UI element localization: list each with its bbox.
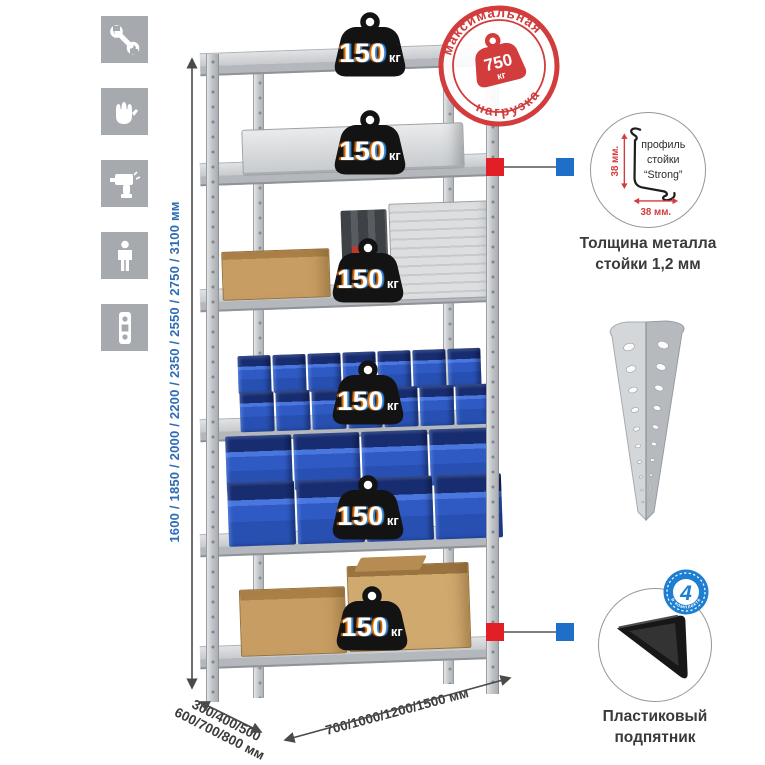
weight-label: 150кг — [328, 612, 416, 643]
weight-label: 150кг — [324, 264, 412, 295]
power-strip-icon — [101, 304, 148, 351]
power-strip-glyph — [117, 311, 133, 345]
person-icon — [101, 232, 148, 279]
profile-caption-line2: стойки 1,2 мм — [568, 254, 728, 275]
load-value: 150 — [337, 501, 384, 531]
load-value: 150 — [339, 38, 386, 68]
badge-value: 4 — [679, 582, 692, 605]
load-unit: кг — [387, 398, 399, 413]
wrench-icon — [101, 16, 148, 63]
foot-caption: Пластиковый подпятник — [575, 706, 735, 748]
cardboard-box — [221, 248, 331, 301]
detail-marker-top — [556, 158, 574, 176]
profile-caption: Толщина металла стойки 1,2 мм — [568, 233, 728, 275]
product-infographic: 1600 / 1850 / 2000 / 2200 / 2350 / 2550 … — [0, 0, 765, 765]
load-unit: кг — [387, 276, 399, 291]
post-marker-bottom — [486, 623, 504, 641]
shelf-load-weight: 150кг — [328, 586, 416, 652]
post-marker-top — [486, 158, 504, 176]
foot-caption-line1: Пластиковый — [575, 706, 735, 727]
height-dimension-label: 1600 / 1850 / 2000 / 2200 / 2350 / 2550 … — [167, 182, 189, 562]
load-unit: кг — [387, 513, 399, 528]
badge-graphic: в комплекте 4 — [663, 569, 709, 615]
shelf-load-weight: 150кг — [326, 12, 414, 78]
drill-glyph — [109, 169, 141, 199]
profile-caption-line1: Толщина металла — [568, 233, 728, 254]
depth-dimension-label: 300/400/500 600/700/800 мм — [158, 684, 287, 765]
shelf-load-weight: 150кг — [326, 110, 414, 176]
gloves-icon — [101, 88, 148, 135]
foot-caption-line2: подпятник — [575, 727, 735, 748]
shelf-load-weight: 150кг — [324, 475, 412, 541]
weight-label: 150кг — [324, 386, 412, 417]
weight-label: 150кг — [324, 501, 412, 532]
gloves-glyph — [110, 97, 140, 127]
profile-detail-circle: 38 мм. 38 мм. профиль стойки “Strong” — [590, 112, 706, 228]
storage-bin — [272, 354, 306, 393]
load-unit: кг — [391, 624, 403, 639]
profile-vertical-dim: 38 мм. — [610, 146, 621, 177]
drill-icon — [101, 160, 148, 207]
profile-drawing: 38 мм. 38 мм. профиль стойки “Strong” — [591, 113, 704, 226]
storage-bin — [275, 390, 310, 431]
storage-bin — [447, 348, 481, 387]
corner-post-drawing — [600, 316, 692, 528]
rack-post-front-left — [206, 54, 219, 702]
rack-post-front-right — [486, 44, 499, 694]
storage-bin — [239, 391, 274, 432]
storage-bin — [237, 355, 271, 394]
weight-label: 150кг — [326, 136, 414, 167]
profile-label-2: стойки — [647, 154, 680, 166]
load-value: 150 — [337, 264, 384, 294]
load-value: 150 — [341, 612, 388, 642]
load-unit: кг — [389, 50, 401, 65]
profile-horizontal-dim: 38 мм. — [641, 207, 672, 218]
detail-marker-bottom — [556, 623, 574, 641]
storage-bin — [227, 480, 296, 546]
load-unit: кг — [389, 148, 401, 163]
wrench-glyph — [110, 25, 140, 55]
storage-bin — [419, 385, 454, 426]
width-dimension-label: 700/1000/1200/1500 мм — [303, 680, 490, 744]
shelf-load-weight: 150кг — [324, 238, 412, 304]
storage-bin — [412, 349, 446, 388]
corner-post-image — [600, 316, 692, 528]
load-value: 150 — [337, 386, 384, 416]
weight-label: 150кг — [326, 38, 414, 69]
profile-label-3: “Strong” — [644, 169, 683, 181]
profile-labels: профиль стойки “Strong” — [641, 139, 686, 181]
load-value: 150 — [339, 136, 386, 166]
profile-label-1: профиль — [641, 139, 686, 151]
box-flap — [354, 555, 427, 572]
quantity-badge: в комплекте 4 — [663, 569, 709, 615]
shelf-load-weight: 150кг — [324, 360, 412, 426]
person-glyph — [112, 240, 138, 272]
